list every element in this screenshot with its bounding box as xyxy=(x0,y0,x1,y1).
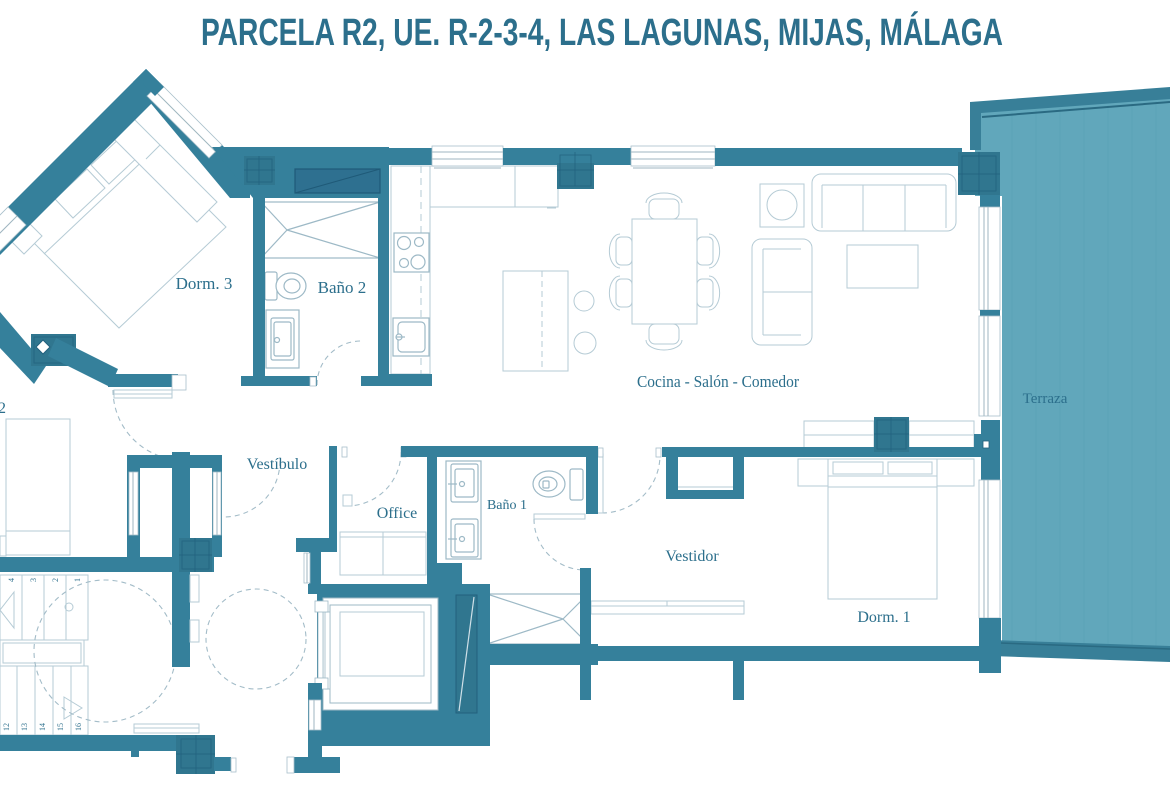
svg-text:14: 14 xyxy=(38,723,47,731)
svg-text:16: 16 xyxy=(74,723,83,731)
svg-text:PARCELA R2, UE. R-2-3-4, LAS L: PARCELA R2, UE. R-2-3-4, LAS LAGUNAS, MI… xyxy=(201,10,1003,54)
svg-text:Office: Office xyxy=(377,505,418,522)
svg-text:4: 4 xyxy=(7,578,16,582)
svg-text:15: 15 xyxy=(56,723,65,731)
svg-text:Cocina - Salón - Comedor: Cocina - Salón - Comedor xyxy=(637,372,799,391)
svg-text:1: 1 xyxy=(73,578,82,582)
svg-text:Vestidor: Vestidor xyxy=(665,548,719,565)
svg-text:Dorm. 3: Dorm. 3 xyxy=(176,274,233,293)
svg-text:Baño 1: Baño 1 xyxy=(487,498,527,513)
svg-text:Terraza: Terraza xyxy=(1023,391,1068,407)
svg-text:Baño 2: Baño 2 xyxy=(318,278,367,297)
svg-text:2: 2 xyxy=(51,578,60,582)
svg-text:12: 12 xyxy=(2,723,11,731)
svg-text:Vestíbulo: Vestíbulo xyxy=(247,456,307,473)
svg-text:3: 3 xyxy=(29,578,38,582)
svg-text:Dorm. 1: Dorm. 1 xyxy=(857,609,910,626)
svg-text:13: 13 xyxy=(20,723,29,731)
svg-text:2: 2 xyxy=(0,400,6,417)
